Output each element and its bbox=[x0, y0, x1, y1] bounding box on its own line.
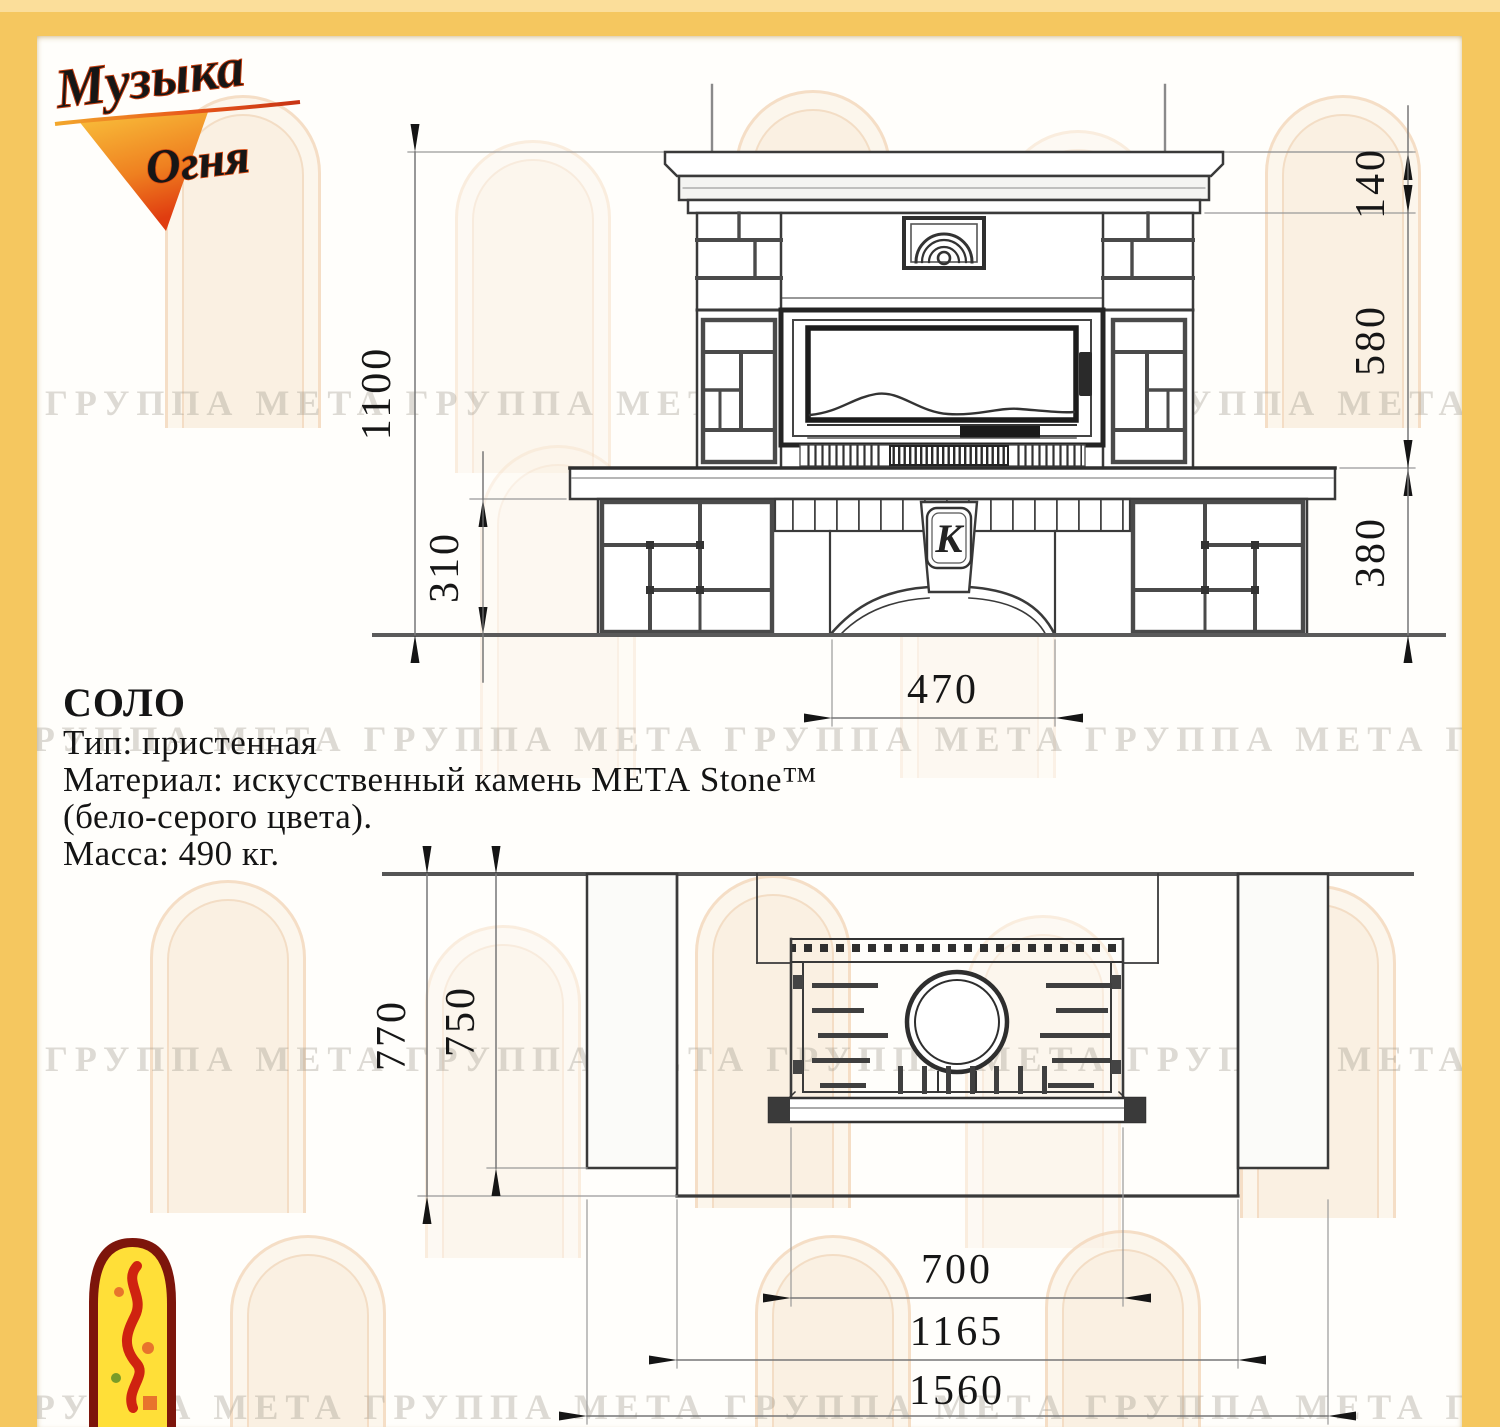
front-plinth-height-label: 310 bbox=[422, 531, 468, 603]
front-cornice-height-label: 140 bbox=[1348, 147, 1394, 219]
base-right-brick-panel bbox=[1133, 502, 1303, 632]
base-keystone: К bbox=[921, 502, 977, 592]
spec-type: Тип: пристенная bbox=[63, 724, 817, 761]
emblem-accent-dot-2 bbox=[111, 1373, 121, 1383]
front-elevation-view: К 1100 310 bbox=[354, 85, 1444, 726]
plan-insert-width-label: 700 bbox=[921, 1247, 993, 1293]
fire-dancer-emblem bbox=[85, 1230, 180, 1427]
flue-collar-outer bbox=[907, 972, 1007, 1072]
cornice-cove-band bbox=[688, 200, 1200, 213]
dim-insert-width: 700 bbox=[791, 1128, 1123, 1306]
plan-inner-depth-label: 750 bbox=[438, 985, 484, 1057]
front-arch-opening-label: 470 bbox=[907, 667, 979, 713]
door-handle bbox=[1079, 352, 1092, 396]
mantel-body bbox=[697, 213, 1193, 468]
dim-plinth-height: 310 bbox=[422, 452, 566, 682]
dim-inner-depth: 750 bbox=[438, 874, 587, 1168]
keystone-letter: К bbox=[934, 516, 964, 561]
insert-vent-band bbox=[791, 939, 1123, 962]
base-left-brick-panel bbox=[602, 502, 772, 632]
right-side-wall bbox=[1238, 874, 1328, 1168]
spec-material: Материал: искусственный камень МЕТА Ston… bbox=[63, 761, 817, 798]
chimney-pipes bbox=[712, 85, 1165, 152]
plan-total-depth-label: 770 bbox=[369, 999, 415, 1071]
firebox-insert-plan bbox=[769, 939, 1145, 1122]
product-specs: СОЛО Тип: пристенная Материал: искусстве… bbox=[63, 682, 817, 872]
insert-door-plan bbox=[769, 1092, 1145, 1122]
door-dark-block bbox=[960, 426, 1040, 438]
emblem-accent-dot-3 bbox=[114, 1287, 124, 1297]
front-total-height-label: 1100 bbox=[354, 346, 400, 440]
muzyka-ognya-logo: Музыка Огня bbox=[50, 46, 320, 246]
plan-plinth-width-label: 1165 bbox=[910, 1309, 1004, 1355]
catalog-page: ГРУППА МЕТА ГРУППА МЕТА ГРУППА МЕТА ГРУП… bbox=[0, 0, 1500, 1427]
hearth-bench bbox=[570, 468, 1335, 499]
emblem-accent-block bbox=[143, 1396, 157, 1410]
firebox-door bbox=[781, 310, 1103, 445]
spec-mass: Масса: 490 кг. bbox=[63, 835, 817, 872]
plan-total-width-label: 1560 bbox=[909, 1368, 1005, 1414]
emblem-accent-dot-1 bbox=[142, 1342, 154, 1354]
mantel-cornice bbox=[665, 152, 1223, 213]
left-side-wall bbox=[587, 874, 677, 1168]
logo-word-2: Огня bbox=[143, 130, 252, 195]
front-firebox-zone-label: 580 bbox=[1348, 304, 1394, 376]
dim-total-height: 1100 bbox=[354, 152, 415, 635]
frieze-fan-ornament bbox=[904, 218, 984, 268]
front-base-height-label: 380 bbox=[1348, 516, 1394, 588]
underdoor-vent-grille bbox=[800, 445, 1085, 466]
product-name: СОЛО bbox=[63, 682, 817, 724]
plan-view: 770 750 700 1165 bbox=[369, 874, 1412, 1424]
base-plinth: К bbox=[598, 499, 1307, 635]
spec-material-color: (бело-серого цвета). bbox=[63, 798, 817, 835]
dim-arch-opening: 470 bbox=[832, 640, 1055, 726]
cornice-top-slab bbox=[665, 152, 1223, 176]
